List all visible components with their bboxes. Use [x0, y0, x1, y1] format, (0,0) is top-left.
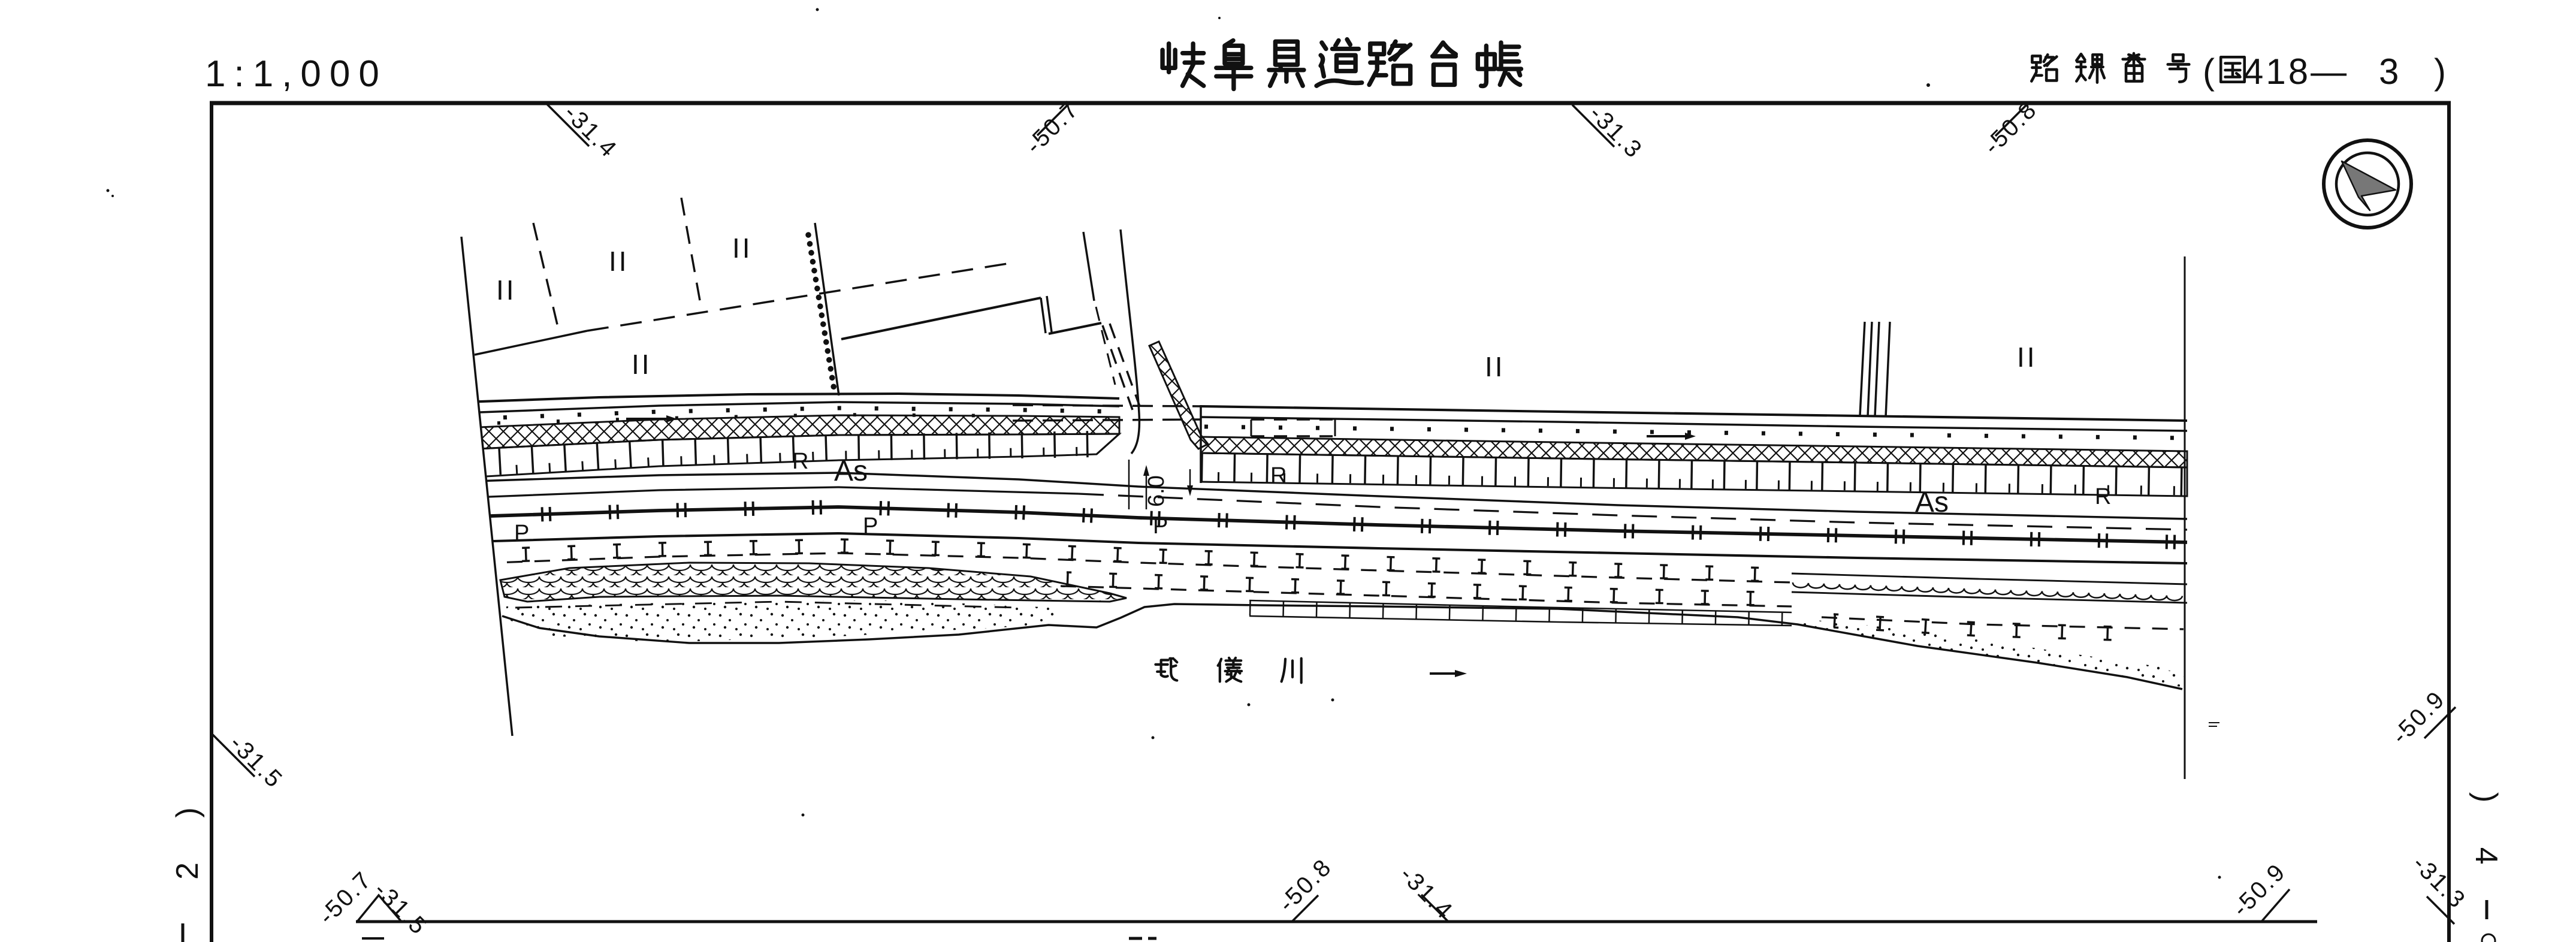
svg-text:P: P [1153, 514, 1168, 539]
svg-text:P: P [514, 521, 529, 546]
svg-text:418—: 418— [2243, 52, 2349, 92]
svg-text:(: ( [2203, 52, 2216, 92]
svg-text:II: II [609, 246, 629, 277]
svg-text:II: II [1485, 351, 1505, 382]
svg-text:1:1,000: 1:1,000 [205, 53, 388, 95]
svg-text:II: II [632, 349, 652, 380]
svg-text:3: 3 [2379, 52, 2399, 92]
svg-text:6.0: 6.0 [1144, 475, 1169, 507]
svg-text:2 ): 2 ) [170, 789, 205, 880]
svg-text:II: II [496, 274, 517, 306]
svg-text:II: II [2017, 342, 2037, 373]
svg-text:As: As [834, 455, 868, 487]
svg-text:R: R [1270, 463, 1287, 488]
svg-text:R: R [2095, 484, 2111, 509]
svg-text:): ) [2434, 52, 2446, 92]
svg-text:) 4: ) 4 [2469, 792, 2503, 883]
svg-text:II: II [732, 233, 753, 264]
svg-text:R: R [792, 449, 808, 474]
